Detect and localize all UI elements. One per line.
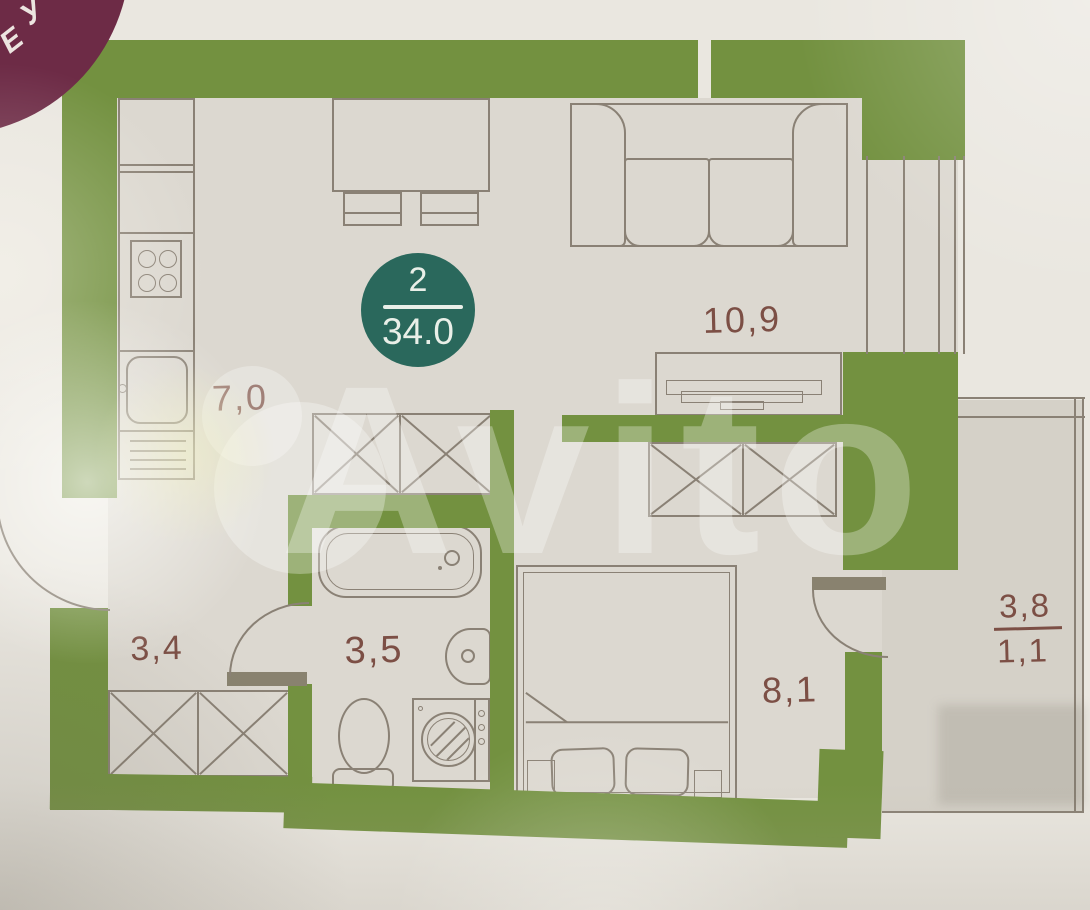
bathtub-drain-dot (438, 566, 442, 570)
balcony-door-leaf (812, 577, 886, 590)
wardrobe-cell (742, 442, 837, 517)
watermark-logo-circle (202, 366, 302, 466)
hall-area-label: 3,4 (130, 629, 184, 669)
balcony-reduced-area-label: 1,1 (997, 631, 1050, 670)
wall-bathroom-left-lower (288, 684, 312, 796)
sofa-armrest (792, 103, 848, 247)
unit-total-area: 34.0 (361, 311, 475, 353)
chair (343, 192, 402, 226)
washer-hatch-lines (428, 719, 469, 760)
sink-drainer-line (130, 468, 186, 470)
window-glazing-line (903, 156, 905, 354)
chair-seat-line (345, 212, 400, 214)
x-mark (650, 444, 742, 515)
stove-burner (138, 250, 156, 268)
washbasin-drain (461, 649, 475, 663)
balcony-outline (882, 811, 1084, 813)
unit-rooms-count: 2 (361, 261, 475, 300)
unit-badge-divider (383, 305, 463, 309)
x-mark (401, 415, 491, 493)
balcony-total-area-label: 3,8 (999, 586, 1052, 625)
wardrobe-cell (399, 413, 493, 495)
entrance-door-arc (0, 497, 110, 611)
wall-bedroom-corner (816, 749, 883, 839)
counter-divider (120, 164, 193, 166)
floor-plan-photo: 7,0 10,9 3,4 3,5 8,1 3,8 1,1 2 34.0 Avit… (0, 0, 1090, 910)
wardrobe-cell (197, 690, 290, 777)
chair (420, 192, 479, 226)
x-mark (110, 692, 197, 775)
wall-living-bedroom (562, 415, 845, 442)
window (866, 156, 965, 354)
washer-dot (418, 706, 423, 711)
counter-divider (120, 350, 193, 352)
wall-right-mid (843, 352, 958, 570)
living-area-label: 10,9 (702, 298, 781, 342)
washer-button (478, 738, 485, 745)
chair-seat-line (422, 212, 477, 214)
sink-drainer-line (130, 450, 186, 452)
tv-stand-shelf (720, 401, 764, 410)
bathtub-drain (444, 550, 460, 566)
sofa-armrest (570, 103, 626, 247)
window-glazing-line (954, 156, 956, 354)
wall-top-right-corner (862, 96, 965, 160)
pillow (550, 747, 616, 797)
washer-panel-line (474, 700, 476, 780)
pillow (624, 747, 689, 797)
counter-divider (120, 232, 193, 234)
wall-bedroom-right (845, 652, 882, 762)
stove-burner (159, 250, 177, 268)
washer-drum-inner (427, 718, 470, 761)
window-glazing-line (938, 156, 940, 354)
washer-button (478, 724, 485, 731)
sofa-cushion (708, 158, 794, 247)
x-mark (744, 444, 835, 515)
unit-badge: 2 34.0 (361, 253, 475, 367)
washer-button (478, 710, 485, 717)
stove (130, 240, 182, 298)
sink-drainer-line (130, 459, 186, 461)
balcony-outline (955, 397, 1085, 399)
sink-tap (118, 384, 127, 393)
nightstand (694, 770, 722, 798)
wall-left (62, 40, 117, 498)
bedroom-area-label: 8,1 (761, 668, 818, 711)
stove-burner (138, 274, 156, 292)
x-mark (199, 692, 288, 775)
wall-hall-bottom (50, 773, 312, 813)
wall-top (62, 40, 965, 98)
bathroom-area-label: 3,5 (344, 629, 404, 674)
wardrobe-cell (648, 442, 744, 517)
dining-table (332, 98, 490, 192)
sofa-cushion (624, 158, 710, 247)
wall-bathroom-right (490, 410, 514, 800)
counter-divider (120, 171, 193, 173)
sink-drainer-line (130, 440, 186, 442)
wall-top-joint (698, 40, 711, 98)
balcony-outline (955, 416, 1085, 418)
stove-burner (159, 274, 177, 292)
kitchen-sink (126, 356, 188, 424)
sofa (570, 103, 848, 247)
toilet-bowl (338, 698, 390, 774)
wardrobe-cell (108, 690, 199, 777)
counter-divider (120, 430, 193, 432)
photo-shadow (938, 705, 1084, 805)
